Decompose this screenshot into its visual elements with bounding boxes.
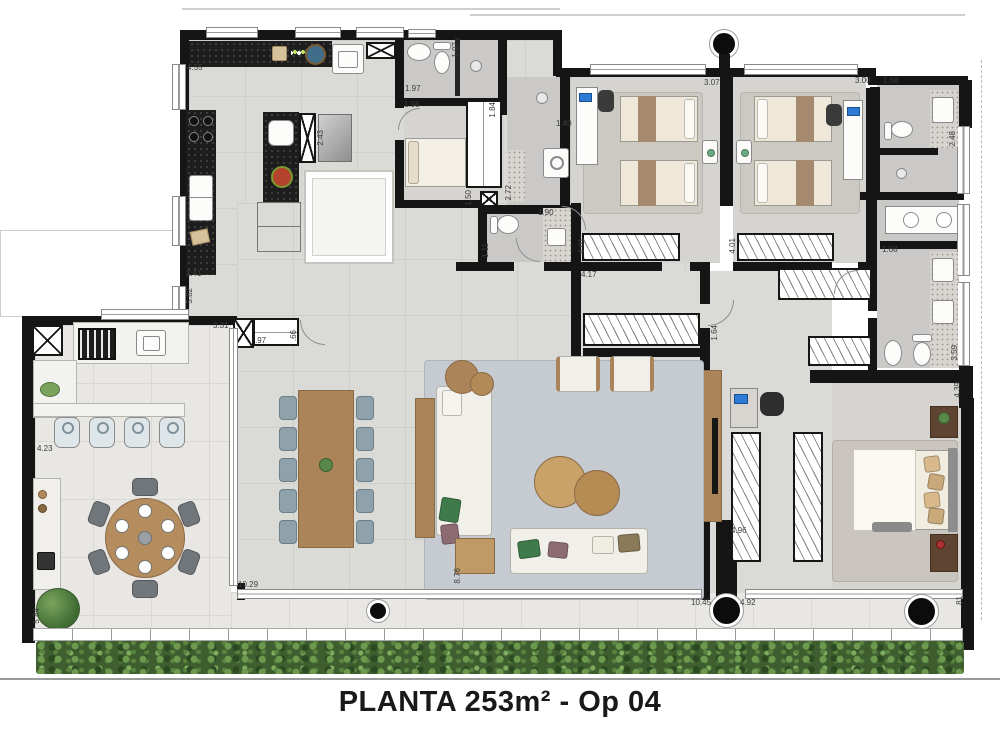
plan-title: PLANTA 253m² - Op 04 bbox=[0, 686, 1000, 719]
dimension-label: 10.45 bbox=[691, 599, 711, 607]
dimension-label: 5.84 bbox=[33, 608, 41, 624]
dimension-label: 2.43 bbox=[317, 130, 325, 146]
dimension-label: 4.23 bbox=[37, 445, 53, 453]
dimension-label: 1.84 bbox=[489, 102, 497, 118]
dimension-label: 1.50 bbox=[465, 190, 473, 206]
dimension-label: 1.11 bbox=[482, 243, 490, 258]
dimension-label: 4.39 bbox=[954, 382, 962, 398]
dimension-label: 8.76 bbox=[454, 568, 462, 584]
dimension-label: 3.07 bbox=[704, 79, 720, 87]
dimension-label: 4.01 bbox=[729, 238, 737, 254]
dimension-label: 4.01 bbox=[578, 238, 586, 254]
dimension-label: 1.97 bbox=[405, 85, 421, 93]
dimension-label: 1.64 bbox=[711, 325, 719, 341]
dimension-label: 3.00 bbox=[855, 77, 871, 85]
floor-plan-canvas: 4.552.432.415.821.971.981.071.841.501.40… bbox=[0, 0, 1000, 731]
dimension-label: 3.31 bbox=[213, 322, 229, 330]
dimension-label: 1.98 bbox=[404, 101, 420, 109]
dimension-labels-layer: 4.552.432.415.821.971.981.071.841.501.40… bbox=[0, 0, 1000, 731]
dimension-label: 1.07 bbox=[452, 42, 460, 58]
dimension-label: 4.96 bbox=[731, 527, 747, 535]
dimension-label: 4.55 bbox=[187, 64, 203, 72]
dimension-label: 2.41 bbox=[186, 270, 202, 278]
dimension-label: .66 bbox=[290, 330, 298, 341]
footer-divider bbox=[0, 678, 1000, 680]
dimension-label: 3.59 bbox=[951, 345, 959, 361]
dimension-label: 4.17 bbox=[581, 271, 597, 279]
dimension-label: 1.40 bbox=[556, 120, 572, 128]
dimension-label: 4.92 bbox=[740, 599, 756, 607]
dimension-label: 2.72 bbox=[505, 185, 513, 201]
dimension-label: 10.29 bbox=[238, 581, 258, 589]
dimension-label: .97 bbox=[255, 337, 266, 345]
dimension-label: 5.82 bbox=[186, 288, 194, 304]
dimension-label: 1.68 bbox=[882, 246, 898, 254]
dimension-label: 2.48 bbox=[949, 131, 957, 147]
dimension-label: 1.68 bbox=[883, 77, 899, 85]
dimension-label: 1.90 bbox=[538, 209, 554, 217]
dimension-label: .81 bbox=[956, 596, 964, 607]
